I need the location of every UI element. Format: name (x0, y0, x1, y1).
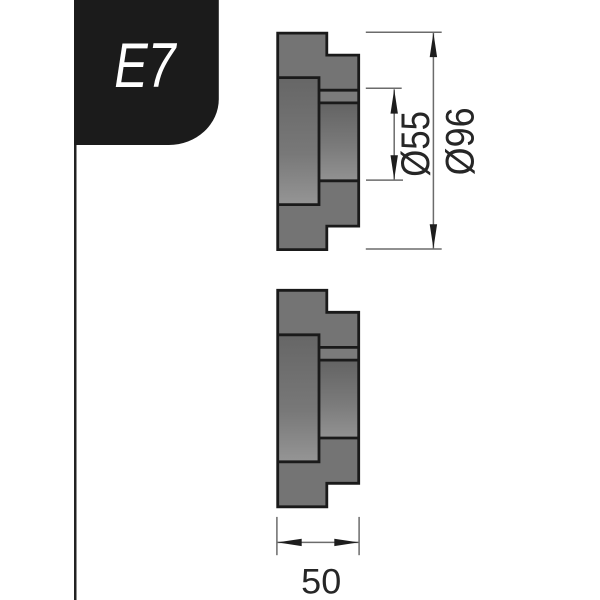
svg-text:50: 50 (301, 562, 341, 600)
svg-text:Ø96: Ø96 (439, 107, 483, 175)
svg-text:Ø55: Ø55 (393, 111, 438, 177)
svg-text:E7: E7 (114, 30, 177, 101)
